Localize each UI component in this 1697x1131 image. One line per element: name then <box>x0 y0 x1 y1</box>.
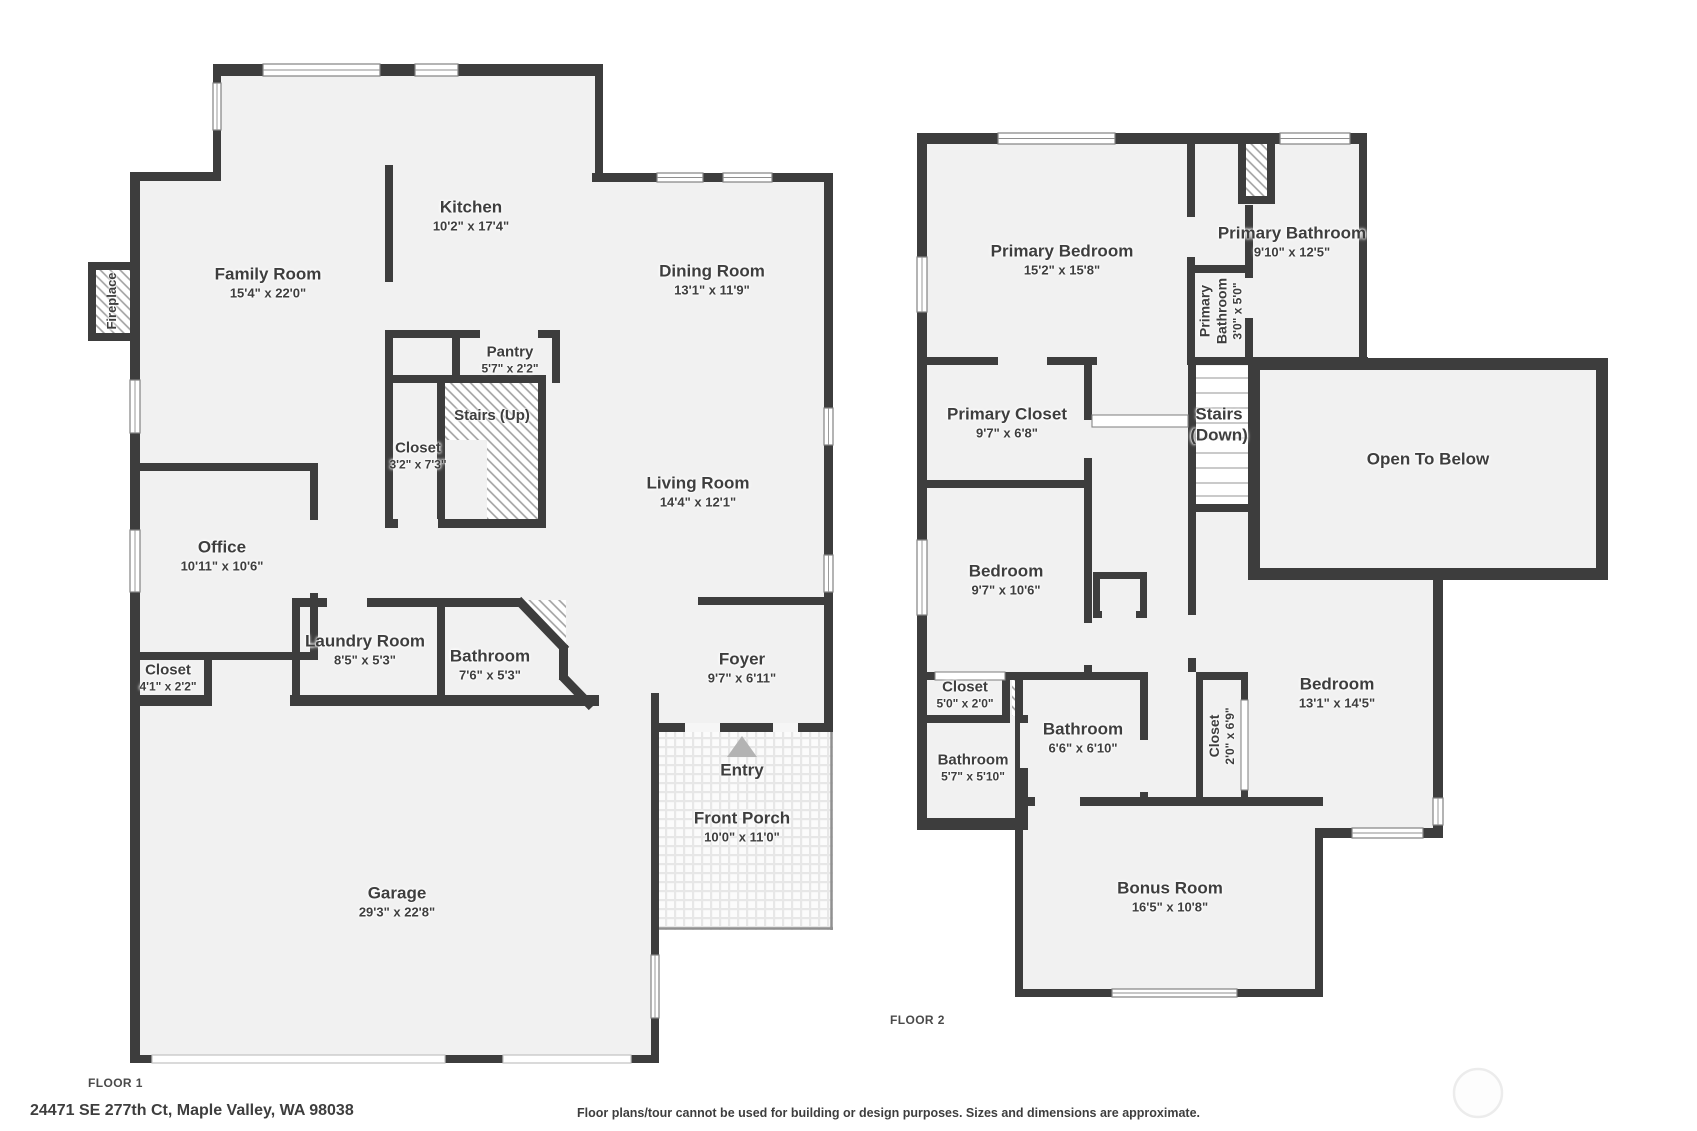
room-label-foyer: Foyer 9'7" x 6'11" <box>708 650 776 687</box>
disclaimer-text: Floor plans/tour cannot be used for buil… <box>577 1106 1200 1120</box>
room-label-family-room: Family Room 15'4" x 22'0" <box>215 265 322 302</box>
room-label-closet-tall: Closet 2'0" x 6'9" <box>1206 707 1238 764</box>
room-label-bonus-room: Bonus Room 16'5" x 10'8" <box>1117 879 1223 916</box>
room-label-garage: Garage 29'3" x 22'8" <box>359 884 435 921</box>
room-label-primary-bedroom: Primary Bedroom 15'2" x 15'8" <box>991 242 1134 279</box>
room-label-open-to-below: Open To Below <box>1367 450 1489 471</box>
room-label-living-room: Living Room 14'4" x 12'1" <box>647 474 750 511</box>
chase-hatch <box>1246 140 1267 196</box>
floor1-tag: FLOOR 1 <box>88 1076 143 1090</box>
room-label-closet-hall: Closet 4'1" x 2'2" <box>139 662 196 695</box>
room-label-bedroom-left: Bedroom 9'7" x 10'6" <box>969 562 1044 599</box>
room-label-closet-stairs: Closet 3'2" x 7'3" <box>389 440 446 473</box>
garage-doors <box>152 1055 631 1063</box>
room-label-fireplace: Fireplace <box>104 272 120 329</box>
floorplan-canvas: Family Room 15'4" x 22'0" Kitchen 10'2" … <box>0 0 1697 1131</box>
room-label-kitchen: Kitchen 10'2" x 17'4" <box>433 198 509 235</box>
room-label-bedroom-right: Bedroom 13'1" x 14'5" <box>1299 675 1375 712</box>
room-label-primary-closet: Primary Closet 9'7" x 6'8" <box>947 405 1067 442</box>
room-label-entry: Entry <box>720 761 763 782</box>
room-label-closet-small: Closet 5'0" x 2'0" <box>936 679 993 712</box>
room-label-bathroom-left: Bathroom 5'7" x 5'10" <box>938 752 1009 785</box>
floor2-tag: FLOOR 2 <box>890 1013 945 1027</box>
room-label-bathroom-mid: Bathroom 6'6" x 6'10" <box>1043 720 1123 757</box>
room-label-pantry: Pantry 5'7" x 2'2" <box>481 344 538 377</box>
watermark-circle <box>1454 1069 1502 1117</box>
room-label-laundry-room: Laundry Room 8'5" x 5'3" <box>305 632 425 669</box>
room-label-office: Office 10'11" x 10'6" <box>181 538 264 575</box>
room-label-dining-room: Dining Room 13'1" x 11'9" <box>659 262 765 299</box>
property-address: 24471 SE 277th Ct, Maple Valley, WA 9803… <box>30 1102 354 1120</box>
room-label-stairs-down: Stairs (Down) <box>1175 404 1263 445</box>
room-label-bathroom-f1: Bathroom 7'6" x 5'3" <box>450 647 530 684</box>
room-label-primary-bathroom-small: Primary Bathroom 3'0" x 5'0" <box>1197 261 1246 361</box>
room-label-stairs-up: Stairs (Up) <box>454 407 530 425</box>
room-label-primary-bathroom: Primary Bathroom 9'10" x 12'5" <box>1218 224 1366 261</box>
room-label-front-porch: Front Porch 10'0" x 11'0" <box>694 809 790 846</box>
